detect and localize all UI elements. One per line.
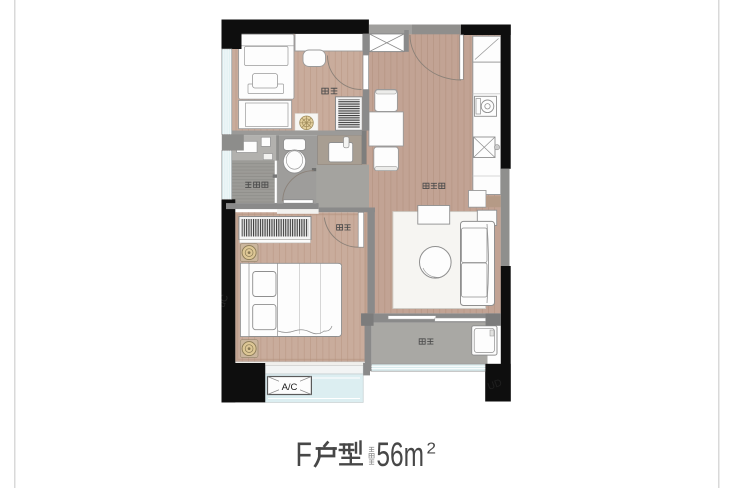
svg-text:A/C: A/C — [282, 382, 298, 393]
svg-text:F: F — [296, 436, 313, 474]
svg-text:56m: 56m — [376, 436, 424, 474]
svg-text:2: 2 — [427, 441, 437, 458]
